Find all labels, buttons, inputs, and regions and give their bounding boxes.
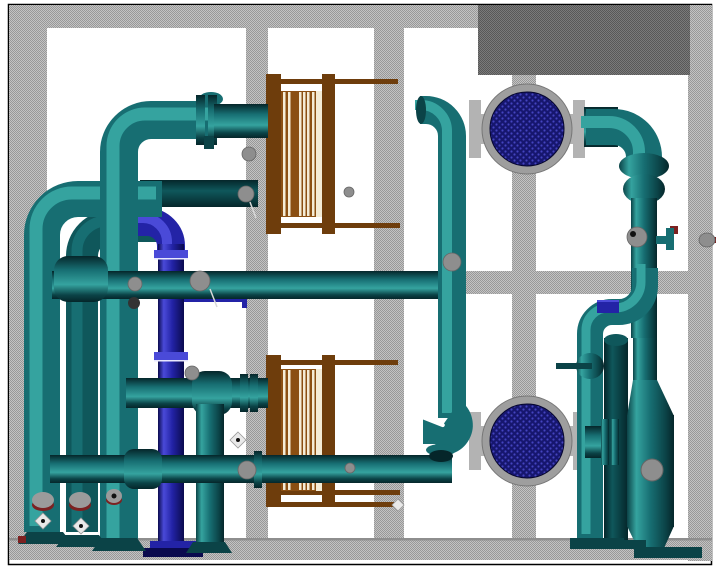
pipe-center-return-opening (429, 450, 453, 462)
diamond-dot-3 (236, 438, 240, 442)
pipe-lower-reducer (124, 449, 162, 489)
pipe-main-horizontal (52, 271, 454, 299)
wall-tap-blob (699, 233, 715, 247)
shell-hx-top-flange-right (573, 100, 585, 158)
ball-valve-hx-top-upper (242, 147, 256, 161)
beam-mid-right (448, 271, 712, 294)
right-valve-dot (630, 231, 636, 237)
pipe-hx-bottom-flange-1 (240, 374, 248, 412)
hx-bottom-tiebar-lower2 (268, 502, 398, 507)
vessel-nozzle (641, 459, 663, 481)
ball-valve-riser (128, 277, 142, 291)
ceiling-slab (478, 5, 690, 75)
shell-bottom-outlet-flange-2 (611, 419, 619, 465)
pipe-top-drain-stub (204, 136, 214, 149)
ball-valve-hx-bottom (185, 366, 199, 380)
shell-hx-bottom-tubesheet (490, 404, 564, 478)
hx-bottom-post-right (322, 355, 335, 507)
shell-hx-top-tubesheet (490, 92, 564, 166)
ball-valve-center-tee (443, 253, 461, 271)
cad-viewport[interactable] (0, 0, 716, 572)
hx-bottom-post-left (266, 355, 281, 507)
shell-bottom-outlet-flange-1 (601, 419, 609, 465)
hx-top-post-right (322, 74, 335, 234)
hx-top-post-left (266, 74, 281, 234)
ball-valve-main-pipe (190, 271, 210, 291)
model-scene (0, 0, 716, 572)
base-4 (186, 542, 232, 553)
handwheel-2 (69, 492, 91, 508)
vessel-base (634, 547, 702, 558)
pipe-hx-bottom-flange-2 (250, 374, 258, 412)
navy-base-upper (150, 541, 196, 549)
pipe-top-flange-1 (196, 95, 205, 145)
hx-top-tiebar-lower (268, 223, 400, 228)
pipe-right-back-riser-cap (604, 334, 628, 346)
ball-valve-lower-pipe (238, 461, 256, 479)
shell-hx-top-flange-left (469, 100, 481, 158)
ball-valve-hx-top-lower (238, 186, 254, 202)
dark-valve-knob (128, 297, 140, 309)
vessel-neck (633, 334, 657, 382)
ball-valve-right-riser (627, 227, 647, 247)
side-tap-body (666, 228, 674, 250)
pipe-hx-top-upper-inlet (214, 104, 268, 138)
base-3 (92, 538, 146, 551)
pipe-main-left-valve-body (54, 256, 108, 302)
handwheel-1 (32, 492, 54, 508)
pipe-center-end-cap (416, 96, 426, 124)
support-dot-hx-bottom (345, 463, 355, 473)
support-dot-hx-top (344, 187, 354, 197)
right-valve-stem (556, 363, 592, 369)
s-bend-navy-flange-line (597, 300, 619, 302)
diamond-dot-2 (79, 524, 83, 528)
red-fitting-floor (18, 536, 26, 543)
hx-top-tiebar-upper (268, 79, 398, 84)
hx-bottom-tiebar-upper (268, 360, 398, 365)
handwheel-3-hub (112, 494, 117, 499)
diamond-dot-1 (41, 519, 45, 523)
